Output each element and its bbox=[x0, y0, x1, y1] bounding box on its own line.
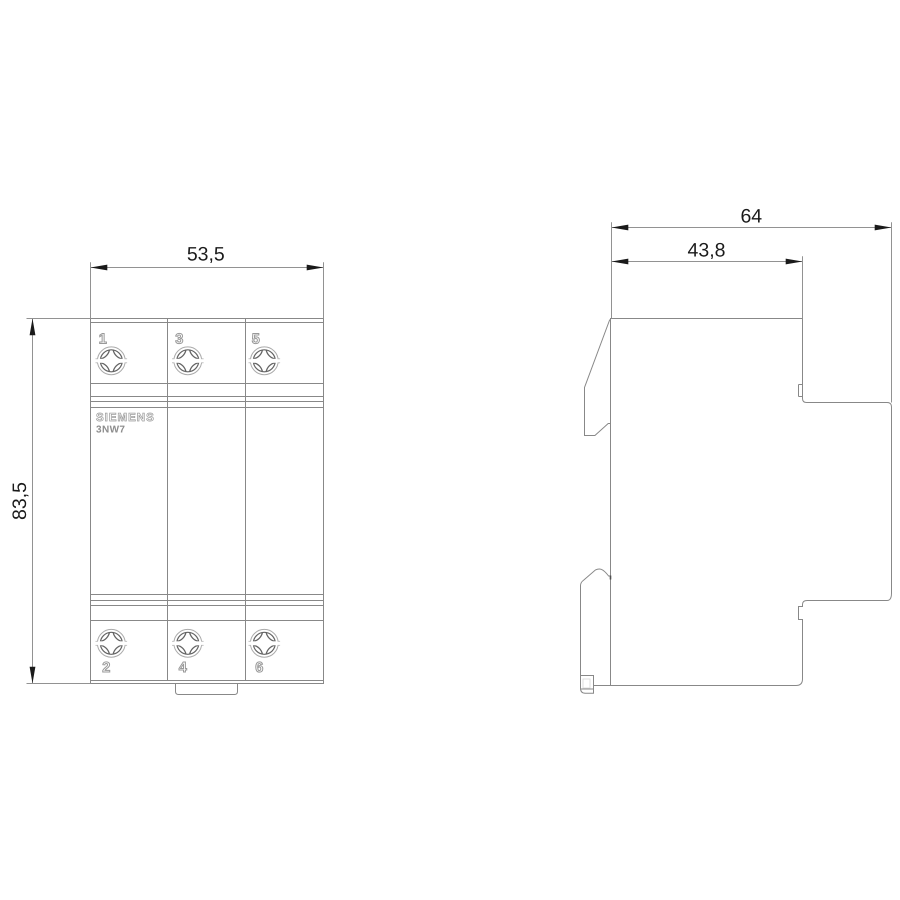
svg-text:4: 4 bbox=[179, 660, 187, 676]
svg-text:53,5: 53,5 bbox=[187, 244, 225, 266]
svg-text:2: 2 bbox=[102, 660, 110, 676]
svg-text:5: 5 bbox=[252, 331, 260, 347]
svg-text:3NW7: 3NW7 bbox=[96, 425, 125, 436]
svg-text:83,5: 83,5 bbox=[9, 482, 31, 520]
svg-text:1: 1 bbox=[99, 331, 107, 347]
svg-text:6: 6 bbox=[255, 660, 263, 676]
svg-text:43,8: 43,8 bbox=[688, 240, 726, 262]
svg-text:SIEMENS: SIEMENS bbox=[96, 412, 155, 424]
svg-text:3: 3 bbox=[175, 331, 183, 347]
svg-text:64: 64 bbox=[740, 206, 762, 228]
